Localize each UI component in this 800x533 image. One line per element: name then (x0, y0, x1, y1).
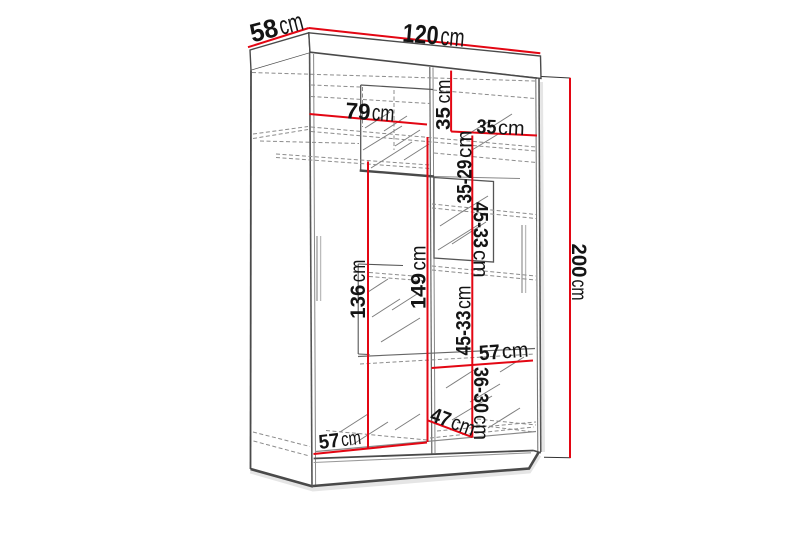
svg-text:120: 120 (401, 18, 439, 51)
svg-text:35-29: 35-29 (453, 160, 476, 204)
svg-text:cm: cm (371, 99, 395, 126)
svg-text:57: 57 (317, 430, 341, 454)
svg-text:cm: cm (567, 280, 590, 301)
svg-text:45-33: 45-33 (452, 311, 475, 356)
svg-text:79: 79 (345, 97, 372, 125)
svg-text:cm: cm (340, 427, 363, 451)
svg-text:136: 136 (347, 285, 370, 319)
svg-text:35: 35 (476, 116, 497, 139)
svg-text:cm: cm (501, 338, 529, 363)
svg-text:cm: cm (452, 286, 475, 310)
svg-text:cm: cm (347, 260, 370, 283)
svg-text:36-30: 36-30 (469, 367, 492, 413)
svg-text:35: 35 (433, 107, 455, 130)
svg-text:cm: cm (408, 246, 431, 271)
svg-text:cm: cm (453, 131, 476, 159)
svg-text:cm: cm (498, 117, 525, 140)
svg-text:57: 57 (478, 341, 501, 366)
svg-text:cm: cm (439, 21, 465, 53)
svg-text:45-33: 45-33 (468, 202, 491, 248)
svg-text:cm: cm (468, 250, 491, 278)
svg-text:cm: cm (433, 80, 455, 104)
svg-text:149: 149 (408, 273, 431, 309)
svg-text:200: 200 (567, 244, 590, 278)
